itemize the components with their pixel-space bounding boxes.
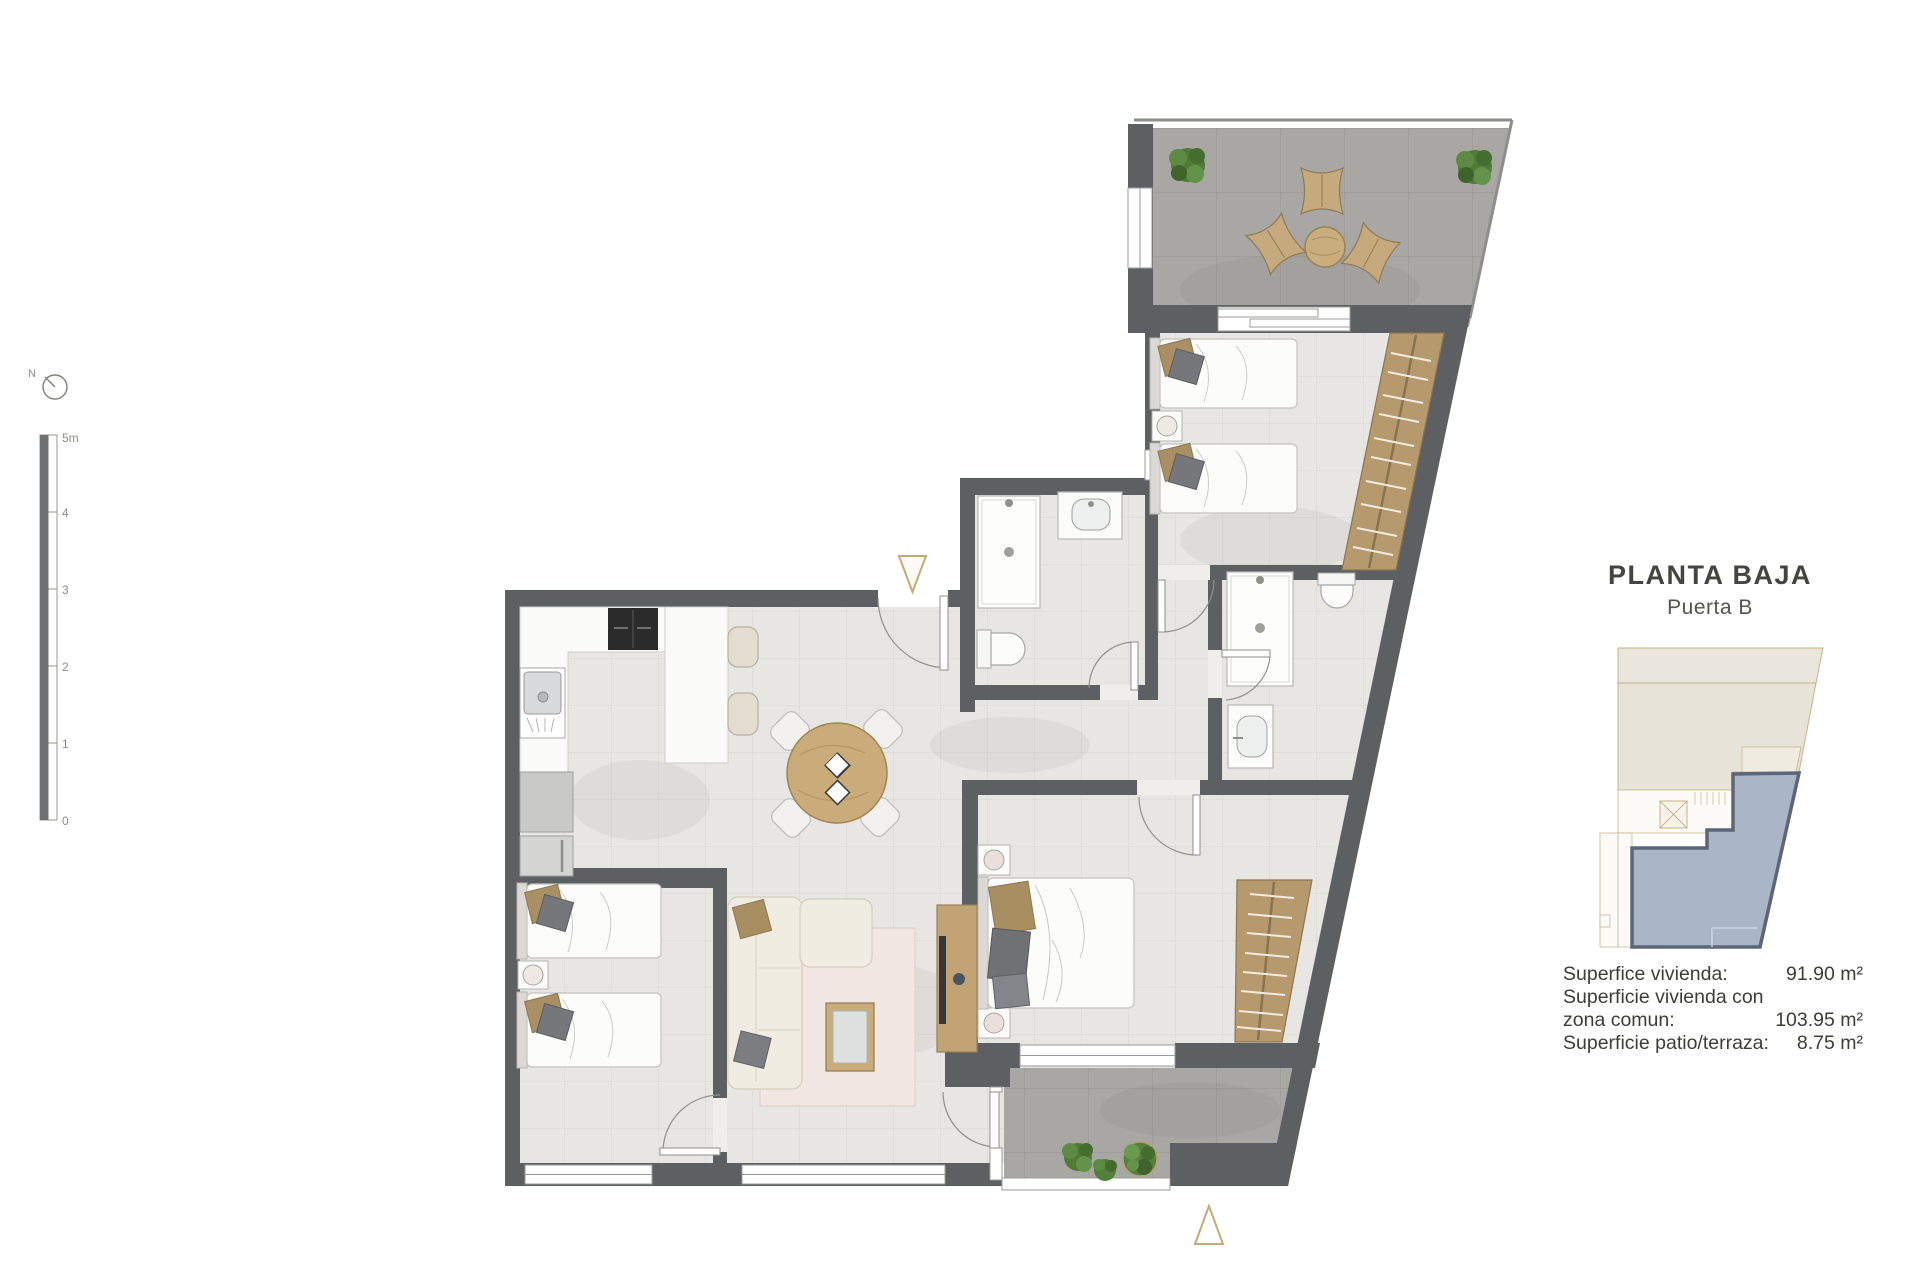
scale-label-5m: 5m bbox=[62, 431, 79, 445]
compass-north-label: N bbox=[28, 368, 36, 380]
area-row: Superficie vivienda con bbox=[1563, 986, 1863, 1009]
compass-icon: N bbox=[28, 368, 67, 399]
coffee-table bbox=[826, 1003, 874, 1071]
terrace-plant-icon bbox=[1169, 148, 1205, 183]
stool bbox=[728, 693, 758, 735]
bed bbox=[517, 992, 661, 1068]
terrace-table bbox=[1305, 227, 1345, 267]
area-label: zona comun: bbox=[1563, 1009, 1675, 1032]
plan-title: PLANTA BAJA bbox=[1555, 560, 1865, 591]
window bbox=[1128, 188, 1152, 268]
area-value: 8.75 m² bbox=[1797, 1032, 1863, 1055]
plan-subtitle: Puerta B bbox=[1555, 596, 1865, 620]
scale-label-2: 2 bbox=[62, 660, 69, 674]
nightstand bbox=[978, 1008, 1010, 1038]
area-label: Superfice vivienda: bbox=[1563, 963, 1728, 986]
window bbox=[742, 1165, 945, 1184]
shower bbox=[978, 496, 1040, 608]
scale-label-4: 4 bbox=[62, 506, 69, 520]
area-row: zona comun: 103.95 m² bbox=[1563, 1009, 1863, 1032]
sliding-door bbox=[1218, 307, 1350, 331]
nightstand bbox=[518, 961, 548, 989]
scale-label-1: 1 bbox=[62, 737, 69, 751]
bathroom-sink bbox=[1228, 705, 1273, 768]
terrace-plant-icon bbox=[1456, 150, 1492, 185]
mini-map bbox=[1600, 648, 1823, 947]
toilet bbox=[977, 630, 1025, 668]
bed bbox=[1150, 443, 1297, 514]
bed bbox=[1150, 338, 1297, 409]
tv-console bbox=[937, 905, 977, 1052]
floor-plan-page: N 5m 4 3 2 1 0 PLANTA BAJA Puerta B Supe… bbox=[0, 0, 1920, 1280]
patio-plant-icon bbox=[1123, 1142, 1157, 1176]
fridge bbox=[520, 772, 573, 876]
bathroom-sink bbox=[1058, 492, 1122, 539]
kitchen-island bbox=[665, 607, 728, 763]
floor-plan-drawing: N 5m 4 3 2 1 0 bbox=[0, 0, 1920, 1280]
dining-area bbox=[767, 706, 905, 840]
area-row: Superfice vivienda: 91.90 m² bbox=[1563, 963, 1863, 986]
area-value: 91.90 m² bbox=[1786, 963, 1863, 986]
window bbox=[525, 1165, 652, 1184]
area-row: Superficie patio/terraza: 8.75 m² bbox=[1563, 1032, 1863, 1055]
nightstand bbox=[1152, 411, 1182, 441]
kitchen-sink bbox=[520, 668, 565, 738]
scale-label-0: 0 bbox=[62, 814, 69, 828]
area-label: Superficie patio/terraza: bbox=[1563, 1032, 1769, 1055]
shower bbox=[1227, 572, 1293, 686]
scale-bar: 5m 4 3 2 1 0 bbox=[40, 431, 79, 828]
tv-icon bbox=[939, 936, 946, 1024]
bed bbox=[517, 883, 661, 959]
stool bbox=[728, 627, 758, 667]
section-marker-down-icon bbox=[899, 556, 926, 592]
area-value: 103.95 m² bbox=[1775, 1009, 1863, 1032]
nightstand bbox=[978, 845, 1010, 875]
double-bed bbox=[978, 877, 1134, 1009]
scale-label-3: 3 bbox=[62, 583, 69, 597]
section-marker-up-icon bbox=[1195, 1206, 1223, 1244]
window bbox=[1020, 1045, 1175, 1066]
area-table: Superfice vivienda: 91.90 m² Superficie … bbox=[1563, 963, 1863, 1055]
title-block: PLANTA BAJA Puerta B bbox=[1555, 560, 1865, 620]
area-label: Superficie vivienda con bbox=[1563, 986, 1764, 1009]
patio-railing bbox=[1002, 1178, 1170, 1190]
terrace-chair bbox=[1301, 168, 1343, 214]
